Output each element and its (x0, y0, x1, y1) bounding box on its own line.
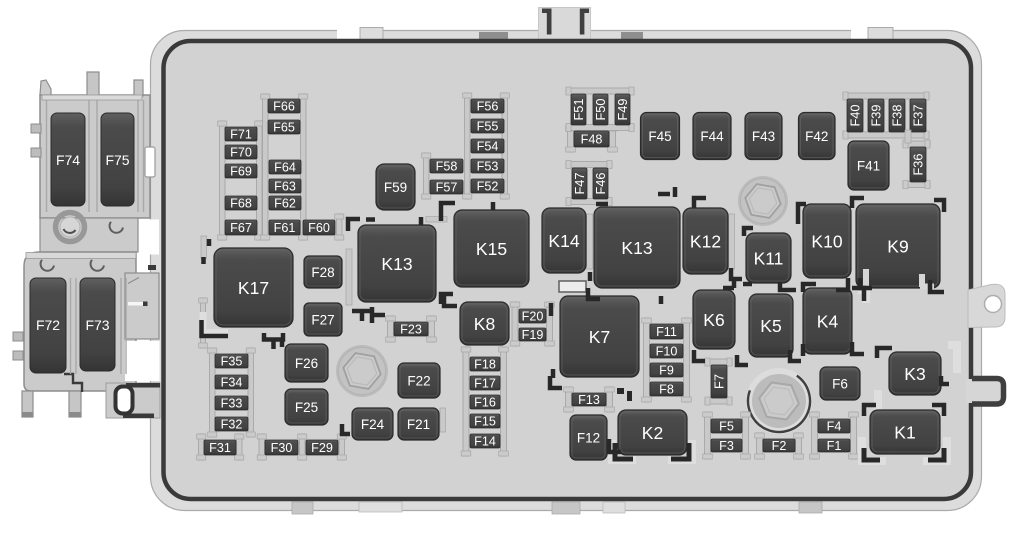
svg-text:F35: F35 (221, 355, 243, 369)
svg-text:F70: F70 (230, 146, 252, 160)
svg-text:K8: K8 (474, 314, 495, 334)
svg-text:F61: F61 (274, 221, 296, 235)
svg-text:F48: F48 (581, 133, 603, 147)
svg-text:F42: F42 (805, 129, 828, 144)
svg-text:K2: K2 (642, 423, 663, 443)
svg-text:F72: F72 (36, 317, 60, 333)
svg-text:F20: F20 (522, 310, 544, 324)
svg-text:F17: F17 (474, 377, 496, 391)
svg-text:F34: F34 (221, 376, 243, 390)
svg-text:F5: F5 (719, 420, 734, 434)
svg-text:F12: F12 (577, 430, 600, 445)
svg-text:F28: F28 (311, 265, 334, 280)
svg-text:K12: K12 (690, 231, 721, 251)
svg-text:F15: F15 (474, 415, 496, 429)
svg-text:F69: F69 (230, 165, 252, 179)
svg-text:K17: K17 (238, 278, 269, 298)
svg-text:F21: F21 (407, 417, 430, 432)
svg-text:K11: K11 (754, 248, 784, 268)
svg-text:F59: F59 (384, 180, 407, 195)
svg-text:K15: K15 (476, 239, 507, 259)
svg-text:F67: F67 (230, 221, 252, 235)
svg-text:K10: K10 (811, 231, 842, 251)
svg-text:F37: F37 (911, 104, 926, 126)
svg-text:F25: F25 (295, 400, 318, 415)
svg-text:F64: F64 (274, 161, 296, 175)
svg-text:F75: F75 (105, 152, 129, 168)
svg-text:F55: F55 (477, 120, 499, 134)
svg-text:F31: F31 (209, 441, 231, 455)
svg-text:F44: F44 (700, 129, 724, 144)
svg-text:K13: K13 (381, 254, 412, 274)
svg-text:F13: F13 (578, 393, 600, 407)
svg-text:F8: F8 (659, 383, 674, 397)
svg-text:F65: F65 (273, 121, 295, 135)
svg-text:F60: F60 (308, 221, 330, 235)
svg-text:F66: F66 (273, 100, 295, 114)
svg-text:F14: F14 (474, 435, 496, 449)
svg-text:K9: K9 (887, 236, 908, 256)
svg-text:F27: F27 (311, 312, 334, 327)
svg-text:K7: K7 (589, 327, 610, 347)
svg-text:F68: F68 (230, 197, 252, 211)
svg-text:K14: K14 (548, 231, 579, 251)
svg-text:F10: F10 (656, 345, 678, 359)
svg-text:F50: F50 (593, 98, 608, 120)
svg-text:F63: F63 (274, 180, 296, 194)
svg-text:F41: F41 (857, 158, 880, 173)
svg-text:K6: K6 (703, 310, 724, 330)
svg-text:F30: F30 (271, 441, 293, 455)
svg-text:F45: F45 (648, 129, 671, 144)
svg-text:F3: F3 (719, 439, 734, 453)
svg-text:K4: K4 (817, 311, 839, 331)
svg-text:K13: K13 (621, 238, 652, 258)
svg-text:F52: F52 (477, 180, 499, 194)
svg-text:F29: F29 (311, 441, 333, 455)
svg-text:F11: F11 (656, 325, 677, 339)
svg-text:F36: F36 (911, 153, 926, 175)
svg-text:F56: F56 (477, 100, 499, 114)
svg-text:K5: K5 (760, 316, 781, 336)
svg-text:F49: F49 (615, 98, 630, 120)
svg-text:F47: F47 (572, 172, 587, 194)
svg-text:F58: F58 (436, 160, 458, 174)
svg-text:F4: F4 (827, 420, 842, 434)
svg-text:F16: F16 (474, 396, 496, 410)
svg-text:K1: K1 (894, 422, 915, 442)
svg-text:F24: F24 (361, 417, 385, 432)
svg-text:F18: F18 (474, 358, 496, 372)
svg-text:F39: F39 (869, 104, 884, 126)
svg-text:F73: F73 (85, 317, 109, 333)
svg-text:F46: F46 (593, 172, 608, 194)
svg-text:F23: F23 (400, 323, 422, 337)
svg-text:F38: F38 (890, 104, 905, 126)
svg-text:F62: F62 (274, 197, 296, 211)
svg-text:F9: F9 (659, 364, 674, 378)
svg-text:F54: F54 (477, 140, 499, 154)
svg-text:F2: F2 (772, 439, 787, 453)
svg-text:F6: F6 (832, 376, 848, 391)
svg-text:F40: F40 (848, 104, 863, 126)
svg-text:F26: F26 (295, 356, 318, 371)
svg-text:F71: F71 (230, 128, 252, 142)
svg-text:K3: K3 (904, 364, 925, 384)
svg-text:F57: F57 (436, 181, 458, 195)
svg-text:F43: F43 (752, 129, 775, 144)
svg-text:F32: F32 (221, 418, 243, 432)
svg-text:F19: F19 (522, 328, 544, 342)
svg-text:F7: F7 (712, 374, 727, 389)
svg-text:F33: F33 (221, 397, 243, 411)
svg-text:F74: F74 (56, 152, 80, 168)
svg-text:F22: F22 (407, 373, 430, 388)
svg-text:F51: F51 (571, 98, 586, 120)
svg-text:F53: F53 (477, 160, 499, 174)
svg-text:F1: F1 (827, 439, 842, 453)
